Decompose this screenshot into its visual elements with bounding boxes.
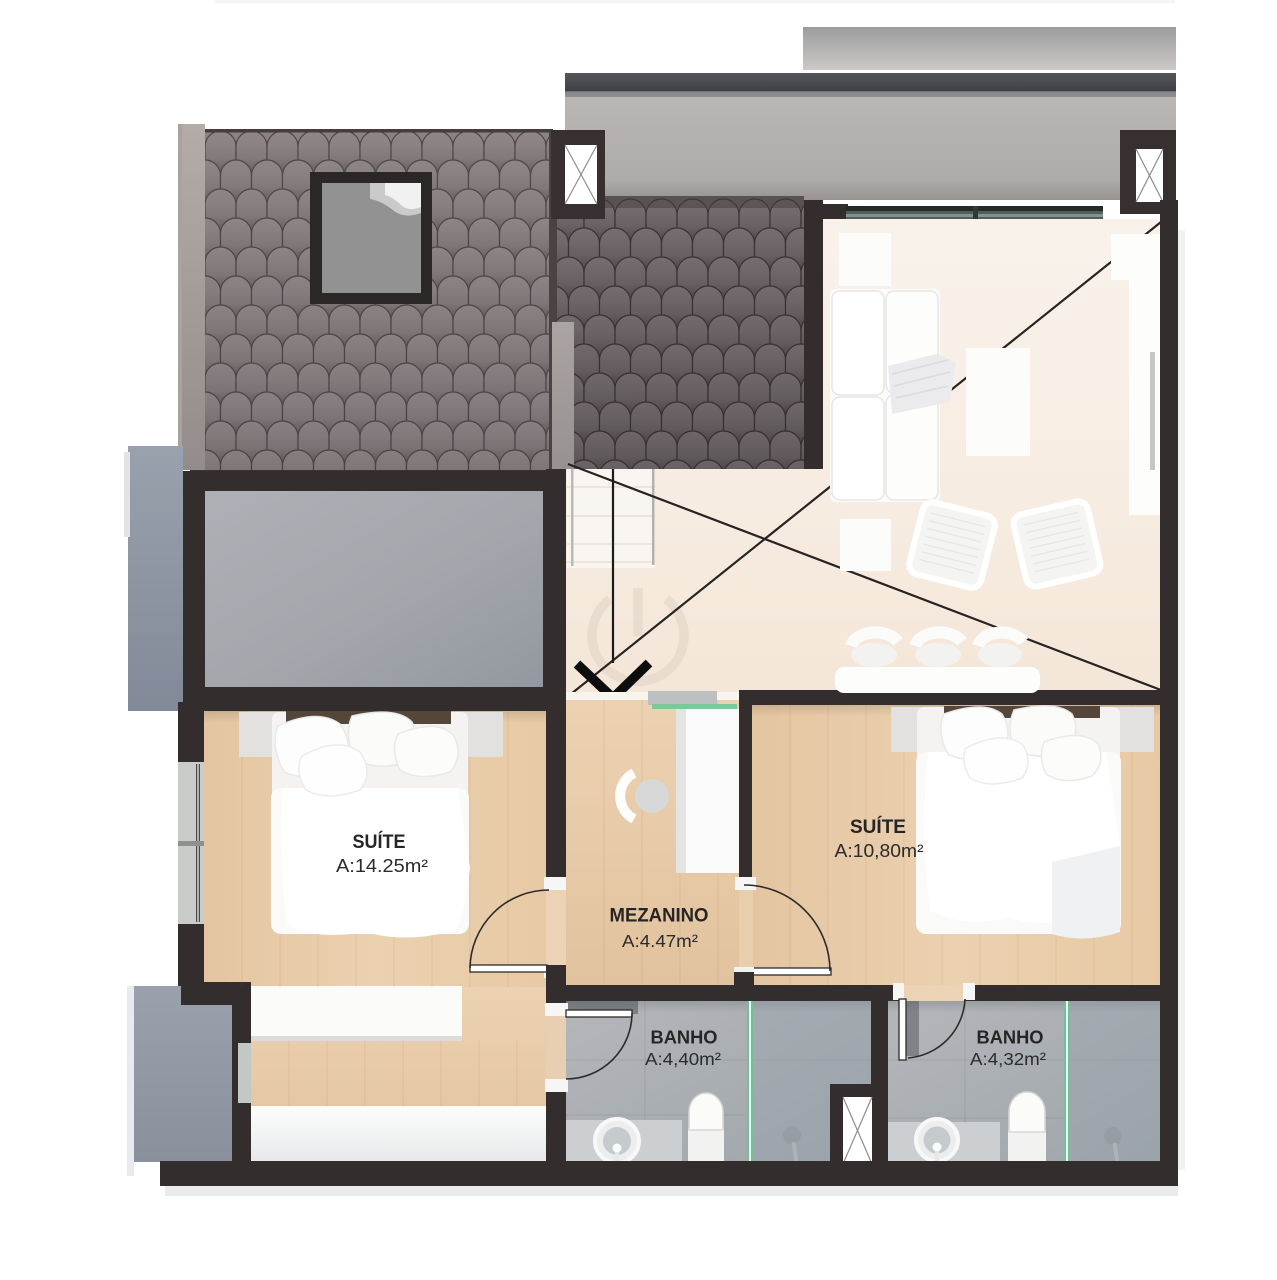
svg-text:MEZANINO: MEZANINO [610, 906, 709, 927]
svg-text:A:10,80m²: A:10,80m² [835, 841, 924, 861]
svg-text:A:4,32m²: A:4,32m² [970, 1049, 1046, 1069]
svg-text:A:4,40m²: A:4,40m² [645, 1049, 721, 1069]
svg-text:A:4.47m²: A:4.47m² [622, 931, 698, 951]
svg-text:SUÍTE: SUÍTE [850, 815, 906, 838]
svg-text:A:14.25m²: A:14.25m² [336, 856, 428, 876]
svg-text:BANHO: BANHO [651, 1027, 718, 1048]
svg-text:BANHO: BANHO [977, 1027, 1044, 1048]
svg-text:SUÍTE: SUÍTE [353, 830, 406, 853]
